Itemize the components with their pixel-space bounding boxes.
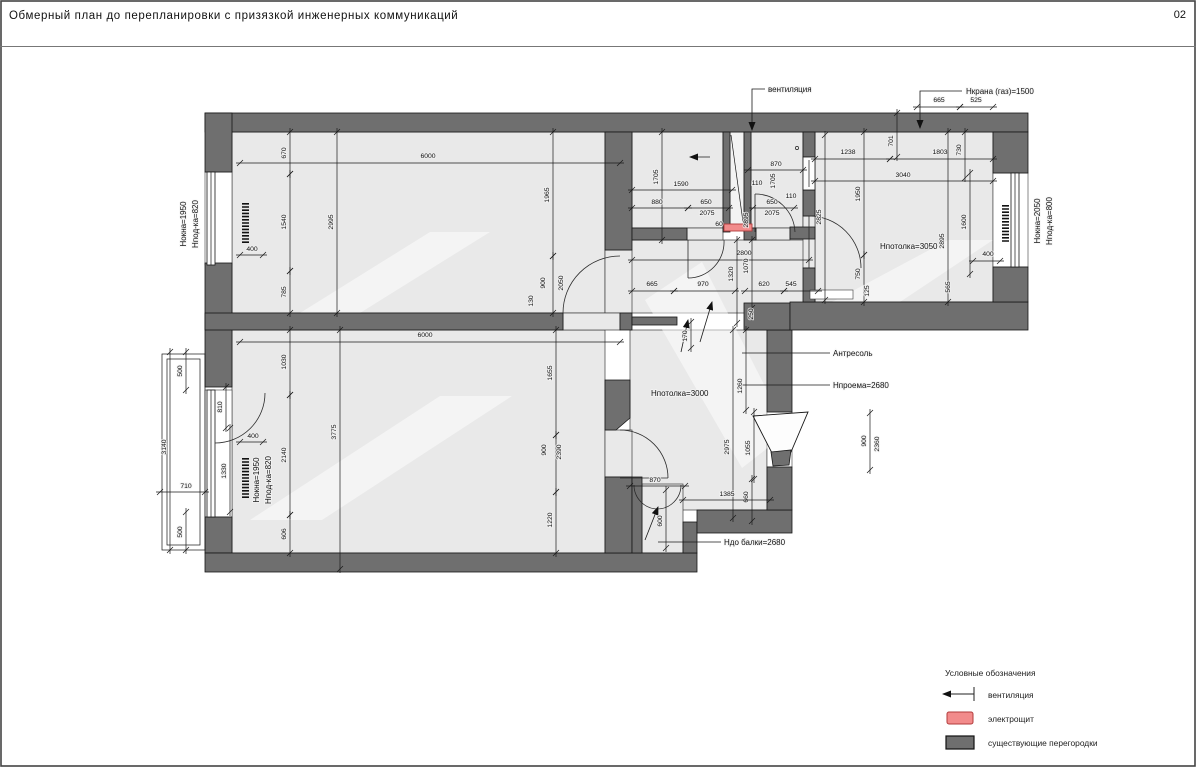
- plan-label: Нпотолка=3050: [880, 242, 938, 251]
- wall-segment: [205, 553, 697, 572]
- dimension-text: 620: [758, 281, 770, 288]
- dimension: 1705: [770, 173, 777, 188]
- legend-item-label: существующие перегородки: [988, 738, 1098, 748]
- dimension-text: 870: [770, 161, 782, 168]
- dimension-text: 3140: [161, 439, 168, 454]
- doorway-floor: [687, 228, 723, 240]
- dimension-text: 170: [682, 330, 689, 342]
- dimension-text: 60: [715, 221, 723, 228]
- dimension-text: 2895: [743, 212, 750, 227]
- dimension-text: 500: [177, 526, 184, 538]
- plan-label: Нокна=1950: [179, 201, 188, 247]
- dimension-text: 2895: [939, 233, 946, 248]
- wall-segment: [632, 477, 642, 553]
- dimension-text: 110: [786, 193, 797, 200]
- dimension-text: 2075: [764, 210, 779, 217]
- interior-window: [803, 157, 815, 190]
- dimension-text: 1238: [840, 149, 855, 156]
- floor-plan-canvas: Обмерный план до перепланировки с призяз…: [0, 0, 1196, 767]
- wall-segment: [205, 113, 232, 172]
- wall-segment: [632, 228, 687, 240]
- dimension-text: 1330: [221, 463, 228, 478]
- vent-arrow-icon: [943, 687, 974, 701]
- electro-panel-icon: [947, 712, 973, 724]
- doorway-floor: [605, 430, 632, 477]
- dimension-text: 1260: [737, 378, 744, 393]
- doorway-floor: [605, 250, 632, 313]
- dimension: 2075: [764, 210, 779, 217]
- dimension-text: 2825: [816, 209, 823, 224]
- dimension: 110: [752, 180, 763, 187]
- dimension: 2075: [699, 210, 714, 217]
- wall-segment: [605, 132, 632, 250]
- dimension-text: 2140: [281, 447, 288, 462]
- drawing-sheet: Обмерный план до перепланировки с призяз…: [0, 0, 1196, 767]
- doorway-floor: [756, 228, 790, 240]
- dimension: 900: [861, 409, 873, 474]
- dimension-text: 500: [177, 365, 184, 377]
- dimension-text: 1070: [743, 258, 750, 273]
- dimension: 710: [156, 483, 209, 495]
- window-recess: [993, 173, 1028, 267]
- plan-label: Нокна=1950: [252, 457, 261, 503]
- legend-title: Условные обозначения: [945, 668, 1035, 678]
- dimension-text: 1030: [281, 354, 288, 369]
- dimension-text: 1385: [719, 491, 734, 498]
- dimension-text: 525: [970, 97, 982, 104]
- legend-item-label: вентиляция: [988, 690, 1034, 700]
- dimension-text: 970: [697, 281, 709, 288]
- dimension-text: 1965: [544, 187, 551, 202]
- wall-segment: [790, 227, 815, 239]
- dimension: 250: [748, 308, 755, 320]
- dimension-text: 2800: [736, 250, 751, 257]
- dimension-text: 665: [646, 281, 658, 288]
- window: [207, 172, 215, 265]
- dimension-text: 3775: [331, 424, 338, 439]
- wall-segment: [767, 330, 792, 412]
- dimension-text: 880: [651, 199, 663, 206]
- dimension-text: 606: [281, 528, 288, 540]
- dimension-text: 250: [748, 308, 755, 320]
- dimension-text: 1705: [653, 169, 660, 184]
- dimension-text: 1055: [745, 440, 752, 455]
- legend-item-label: электрощит: [988, 714, 1034, 724]
- plan-label: Нокна=2050: [1033, 198, 1042, 244]
- dimension-text: 900: [541, 444, 548, 456]
- dimension-text: 900: [540, 277, 547, 289]
- dimension-text: 2050: [558, 275, 565, 290]
- dimension-text: 6000: [417, 332, 432, 339]
- dimension: 2050: [558, 275, 565, 290]
- wall-segment: [205, 517, 232, 553]
- dimension-text: 125: [864, 285, 871, 297]
- dimension-text: 3040: [895, 172, 910, 179]
- dimension-text: 650: [700, 199, 712, 206]
- vent-shaft-wall: [723, 132, 730, 232]
- dimension-text: 900: [861, 435, 868, 447]
- dimension-text: 2360: [874, 436, 881, 451]
- wall-segment: [620, 313, 632, 330]
- plan-label: Нкрана (газ)=1500: [966, 87, 1034, 96]
- wall-segment: [790, 302, 1028, 330]
- dimension-text: 750: [855, 268, 862, 280]
- wall-segment: [683, 522, 697, 553]
- dimension: 665: [913, 97, 964, 110]
- dimension-text: 730: [956, 144, 963, 156]
- legend: Условные обозначения вентиляция электрощ…: [943, 668, 1098, 749]
- wall-segment: [803, 132, 815, 157]
- dimension-text: 130: [528, 295, 535, 307]
- dimension-text: 1950: [855, 186, 862, 201]
- dimension: 525: [956, 97, 997, 110]
- dimension-text: 665: [933, 97, 945, 104]
- dimension-text: 785: [281, 286, 288, 298]
- dimension-text: 670: [281, 147, 288, 159]
- dimension-text: 650: [766, 199, 778, 206]
- dimension-text: 400: [982, 251, 994, 258]
- dimension: 60: [715, 221, 723, 228]
- wall-segment: [632, 317, 677, 325]
- plan-label: вентиляция: [768, 85, 812, 94]
- window: [207, 390, 215, 517]
- existing-partition-icon: [946, 736, 974, 749]
- dimension: 500: [177, 508, 189, 554]
- dimension-text: 545: [785, 281, 797, 288]
- dimension-text: 1540: [281, 214, 288, 229]
- wall-segment: [605, 380, 630, 430]
- plan-label: Нпод-ка=800: [1045, 197, 1054, 245]
- dimension: 565: [945, 281, 952, 293]
- dimension-text: 710: [180, 483, 192, 490]
- wall-segment: [803, 190, 815, 216]
- drawing-title: Обмерный план до перепланировки с призяз…: [9, 10, 458, 22]
- dimension: 2390: [556, 444, 563, 459]
- plan-label: Нпотолка=3000: [651, 389, 709, 398]
- dimension-text: 1320: [728, 266, 735, 281]
- dimension-text: 701: [888, 135, 895, 147]
- window: [1011, 173, 1019, 267]
- balcony: [162, 354, 205, 550]
- dimension: 2895: [743, 212, 750, 227]
- dimension-text: 1220: [547, 512, 554, 527]
- dimension: 500: [177, 348, 189, 394]
- wall-segment: [697, 510, 792, 533]
- plan-label: Антресоль: [833, 349, 873, 358]
- plan-label: Нпод-ка=820: [191, 200, 200, 248]
- dimension: 130: [528, 295, 535, 307]
- dimension: 125: [864, 285, 871, 297]
- dimension-text: 400: [247, 433, 259, 440]
- dimension-text: 810: [217, 401, 224, 413]
- dimension-text: 110: [752, 180, 763, 187]
- dimension-text: 565: [945, 281, 952, 293]
- dimension-text: 2390: [556, 444, 563, 459]
- dimension-text: 1655: [547, 365, 554, 380]
- dimension-text: 600: [657, 515, 664, 527]
- dimension: 2360: [874, 436, 881, 451]
- wall-segment: [993, 267, 1028, 302]
- dimension-text: 6000: [420, 153, 435, 160]
- dimension-text: 2975: [724, 439, 731, 454]
- page-number: 02: [1174, 9, 1186, 21]
- dimension-text: 400: [246, 246, 258, 253]
- dimension-text: 2075: [699, 210, 714, 217]
- dimension-text: 870: [649, 477, 661, 484]
- plan-label: Ндо балки=2680: [724, 538, 786, 547]
- wall-segment: [205, 313, 563, 330]
- wall-segment: [205, 113, 1028, 132]
- dimension: 110: [786, 193, 797, 200]
- dimension-text: 1705: [770, 173, 777, 188]
- dimension-text: 2995: [328, 214, 335, 229]
- wall-segment: [767, 467, 792, 510]
- dimension-text: 1600: [961, 214, 968, 229]
- plan-label: Нпод-ка=820: [264, 456, 273, 504]
- wall-segment: [993, 132, 1028, 173]
- dimension-text: 1803: [932, 149, 947, 156]
- dimension-text: 1590: [673, 181, 688, 188]
- plan-label: Нпроема=2680: [833, 381, 889, 390]
- dimension-text: 660: [743, 491, 750, 503]
- doorway-floor: [563, 313, 620, 330]
